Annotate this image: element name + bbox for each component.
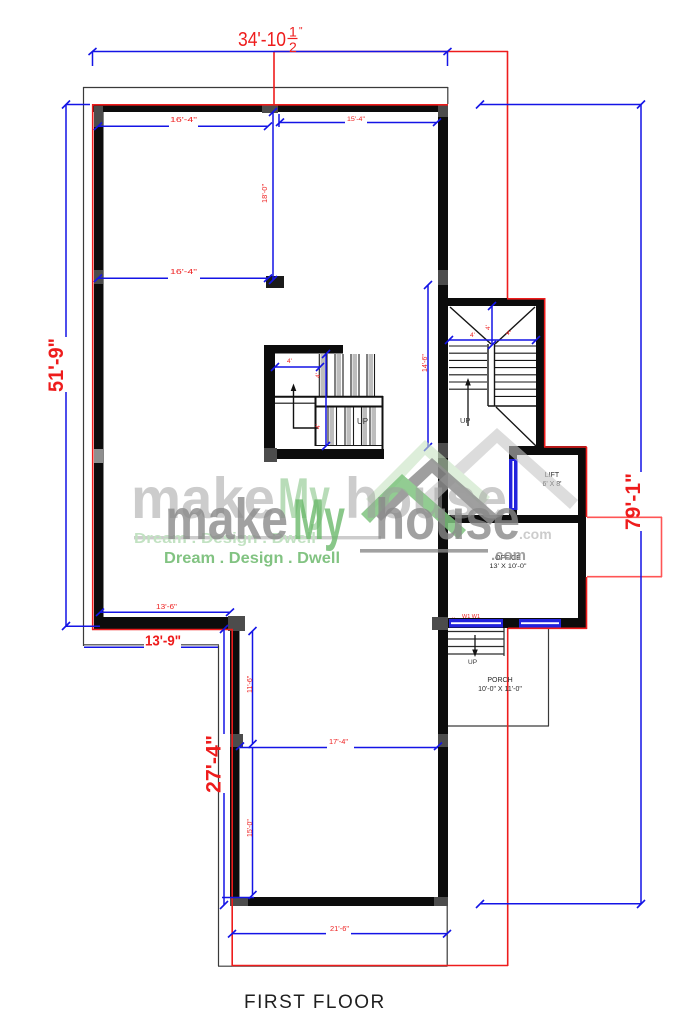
svg-text:.com: .com [491,547,526,564]
svg-text:51'-9": 51'-9" [45,338,68,392]
svg-text:15'-0": 15'-0" [247,819,254,837]
svg-text:34'-10: 34'-10 [238,29,286,51]
svg-text:13'-9": 13'-9" [145,633,181,650]
svg-text:UP: UP [460,416,470,425]
svg-text:17'-4": 17'-4" [329,739,349,746]
svg-text:16'-4": 16'-4" [170,267,197,276]
svg-text:4': 4' [315,373,322,378]
svg-text:4': 4' [485,325,492,330]
svg-text:4': 4' [287,358,292,365]
svg-text:79'-1": 79'-1" [622,473,645,530]
svg-text:..: .. [452,614,456,620]
svg-text:UP: UP [357,417,368,426]
svg-text:21'-6": 21'-6" [330,926,350,933]
svg-text:13'-6": 13'-6" [156,604,178,611]
svg-text:1: 1 [289,24,297,40]
svg-text:4': 4' [315,424,322,429]
svg-text:house: house [375,488,520,552]
svg-text:13' X 10'-0": 13' X 10'-0" [490,563,528,570]
svg-text:PORCH: PORCH [487,677,512,684]
svg-text:UP: UP [468,659,477,666]
svg-text:16'-4": 16'-4" [170,115,197,124]
svg-text:make: make [165,488,288,552]
svg-text:27'-4": 27'-4" [203,735,226,793]
svg-text:4': 4' [506,330,511,337]
svg-text:10'-0" X 11'-0": 10'-0" X 11'-0" [478,686,522,693]
svg-text:.com: .com [519,526,552,542]
svg-text:15'-4": 15'-4" [347,116,366,123]
svg-text:11'-6": 11'-6" [247,675,254,693]
svg-text:2: 2 [289,39,297,55]
svg-text:": " [299,26,303,37]
svg-text:W1 W1: W1 W1 [462,614,480,620]
svg-text:4': 4' [470,332,475,339]
svg-text:Dream . Design . Dwell: Dream . Design . Dwell [164,550,340,567]
svg-text:18'-0": 18'-0" [260,184,269,203]
svg-text:14'-6": 14'-6" [422,354,429,372]
svg-text:My: My [293,488,345,552]
svg-text:FIRST FLOOR: FIRST FLOOR [244,992,386,1013]
